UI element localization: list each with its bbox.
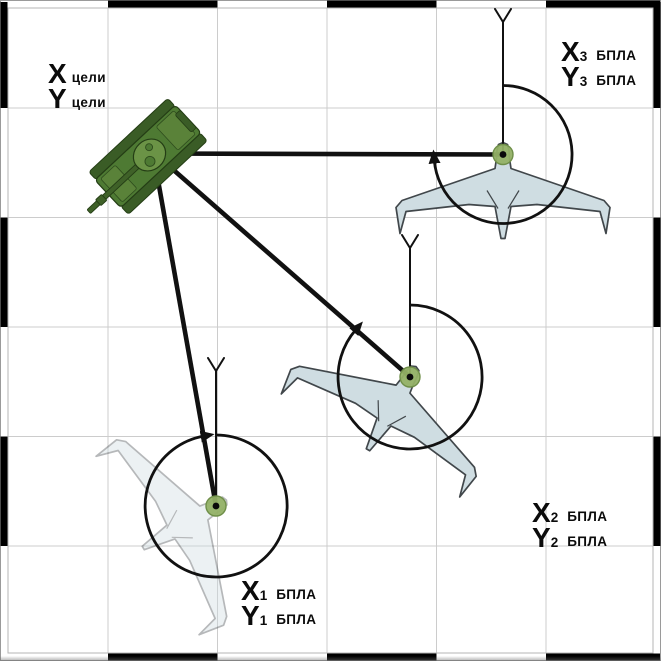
uav3-x-index: 3 [580, 50, 588, 64]
target-y-word: цели [72, 96, 106, 110]
uav2-y-letter: Y [532, 527, 550, 550]
sight-line-uav1 [153, 152, 216, 506]
uav3-y-word: БПЛА [596, 74, 636, 88]
uav3-x-word: БПЛА [596, 49, 636, 63]
uav3-y-letter: Y [561, 66, 579, 89]
uav2-waypoint-dot-icon [400, 367, 420, 387]
uav1-y-row: Y 1 БПЛА [241, 603, 316, 628]
target-y-letter: Y [48, 88, 66, 111]
uav1-y-word: БПЛА [276, 613, 316, 627]
uav2-x-word: БПЛА [567, 510, 607, 524]
uav1-y-letter: Y [241, 605, 259, 628]
uav-triangulation-diagram: X цели Y цели X 3 БПЛА Y 3 БПЛА X 2 БПЛА… [0, 0, 661, 661]
uav3-north-antenna-icon [495, 9, 511, 155]
sight-line-uav2 [153, 152, 410, 377]
uav3-coords-label: X 3 БПЛА Y 3 БПЛА [561, 39, 636, 89]
target-y-row: Y цели [48, 86, 106, 111]
uav1-coords-label: X 1 БПЛА Y 1 БПЛА [241, 578, 316, 628]
uav2-y-row: Y 2 БПЛА [532, 525, 607, 550]
uav2-x-index: 2 [551, 511, 559, 525]
uav3-y-index: 3 [580, 75, 588, 89]
uav1-y-index: 1 [260, 614, 268, 628]
uav2-y-index: 2 [551, 536, 559, 550]
tank-icon [69, 98, 208, 233]
target-x-word: цели [72, 71, 106, 85]
target-coords-label: X цели Y цели [48, 61, 106, 111]
uav3-y-row: Y 3 БПЛА [561, 64, 636, 89]
uav2-coords-label: X 2 БПЛА Y 2 БПЛА [532, 500, 607, 550]
uav3-waypoint-dot-icon [493, 145, 513, 165]
uav1-waypoint-dot-icon [206, 496, 226, 516]
uav2-y-word: БПЛА [567, 535, 607, 549]
sight-line-uav3 [153, 154, 503, 155]
uav1-x-word: БПЛА [276, 588, 316, 602]
uav1-x-index: 1 [260, 589, 268, 603]
